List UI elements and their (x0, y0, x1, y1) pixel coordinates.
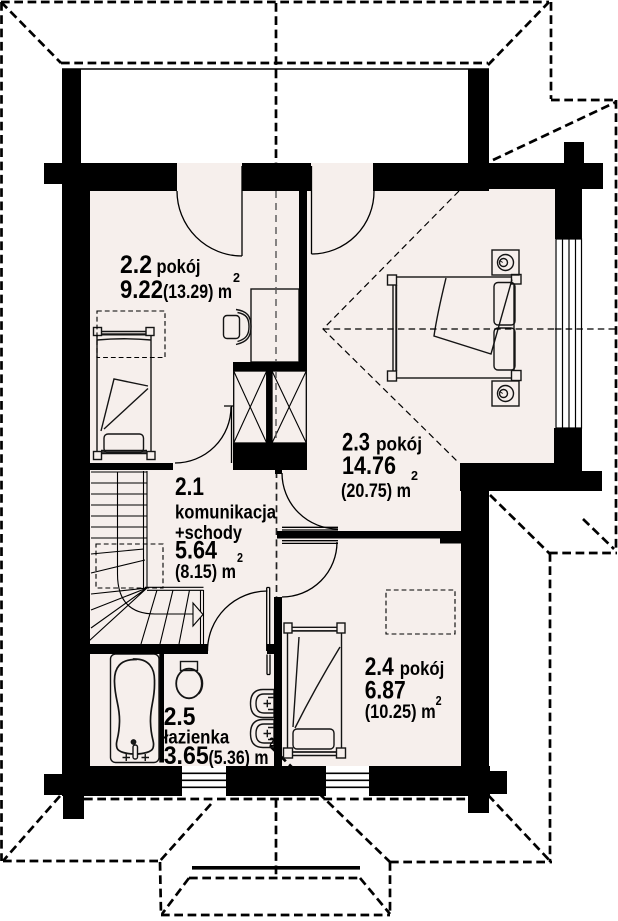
svg-text:pokój: pokój (157, 257, 201, 278)
svg-text:komunikacja: komunikacja (175, 503, 276, 524)
svg-text:2: 2 (233, 270, 240, 285)
svg-text:pokój: pokój (400, 659, 445, 680)
svg-text:(5.36) m: (5.36) m (209, 748, 269, 769)
svg-text:2: 2 (237, 550, 243, 565)
svg-text:6.87: 6.87 (365, 677, 406, 705)
svg-text:5.64: 5.64 (175, 537, 217, 565)
svg-text:2: 2 (436, 693, 442, 708)
svg-text:(13.29) m: (13.29) m (163, 282, 232, 303)
svg-text:(10.25) m: (10.25) m (365, 702, 436, 723)
svg-text:2: 2 (411, 468, 418, 483)
svg-text:(8.15) m: (8.15) m (175, 562, 236, 583)
svg-text:2.1: 2.1 (175, 473, 204, 501)
svg-text:3.65: 3.65 (164, 742, 209, 770)
svg-text:9.22: 9.22 (120, 276, 163, 304)
svg-text:(20.75) m: (20.75) m (341, 481, 411, 502)
svg-text:14.76: 14.76 (342, 452, 396, 480)
svg-text:2: 2 (269, 735, 274, 750)
svg-text:2.2: 2.2 (120, 251, 152, 279)
